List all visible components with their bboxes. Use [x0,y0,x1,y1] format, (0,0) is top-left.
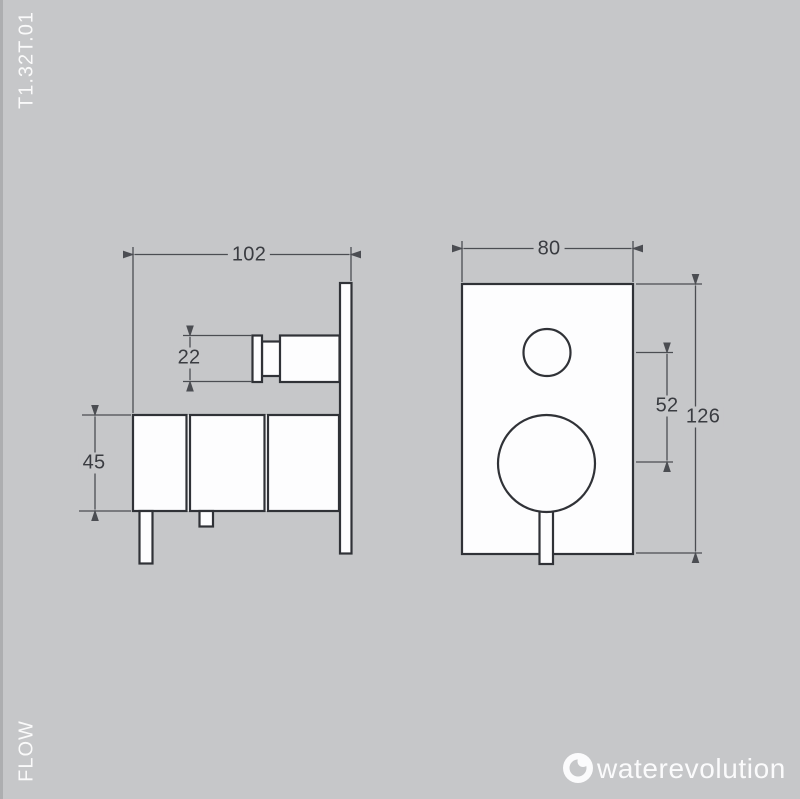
side-knob-stem [262,342,281,377]
dim-label-body-height: 45 [79,453,110,474]
flow-label: FLOW [16,720,39,782]
dim-label-front-height: 126 [682,407,724,428]
brand-logo-icon [563,753,593,783]
dim-label-knob-height: 22 [174,348,205,369]
side-lever-handle [140,511,153,564]
dim-label-side-width: 102 [228,245,270,266]
front-view-drawing [462,284,633,564]
side-knob-body [280,336,340,383]
spec-sheet: 102 22 45 80 52 126 T1.32T.01 FLOW water… [0,0,800,799]
side-knob-cap [253,336,263,383]
side-diverter-tab [200,511,214,527]
logo-droplet-icon [578,756,589,767]
front-small-knob [524,329,571,376]
brand-wordmark: waterevolution [597,753,786,785]
dim-label-circle-offset: 52 [652,396,683,417]
side-view-drawing [133,283,352,564]
side-wall-plate [340,283,352,554]
side-body-section-2 [190,415,265,511]
dim-label-front-width: 80 [534,239,565,260]
side-body-section-1 [133,415,187,511]
front-main-dial [498,415,595,512]
product-code: T1.32T.01 [16,11,39,109]
side-body-section-3 [268,415,339,511]
